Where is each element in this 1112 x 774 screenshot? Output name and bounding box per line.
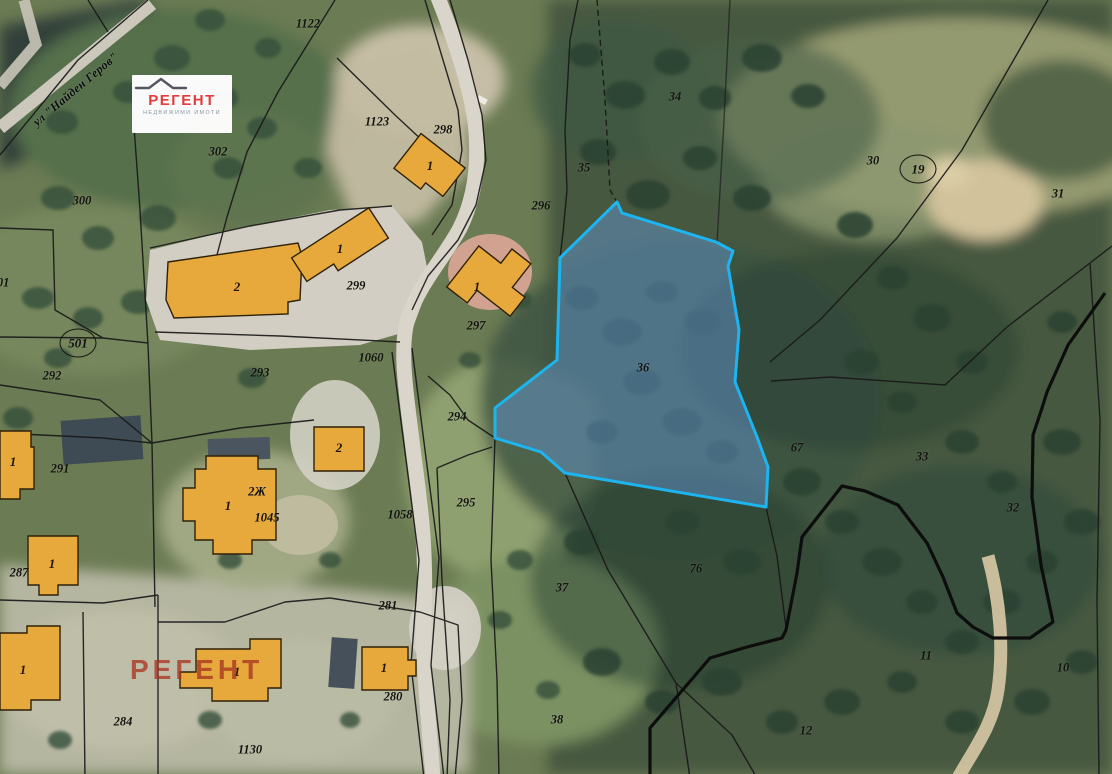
gray-roof	[328, 637, 357, 689]
agency-tagline-text: НЕДВИЖИМИ ИМОТИ	[143, 110, 221, 116]
roof-icon	[132, 75, 190, 91]
cadastral-map: 1122302300301112329829629929710602922932…	[0, 0, 1112, 774]
agency-brand-text: РЕГЕНТ	[148, 92, 216, 109]
agency-logo: РЕГЕНТ НЕДВИЖИМИ ИМОТИ	[132, 75, 232, 133]
circled-parcel-label: 501	[60, 329, 97, 358]
building-polygon	[0, 626, 60, 710]
building-polygon	[314, 427, 364, 471]
barn-roof	[61, 415, 144, 464]
building-polygon	[362, 647, 416, 690]
circled-parcel-label: 19	[900, 155, 937, 184]
building-polygon	[183, 456, 276, 554]
building-polygon	[0, 431, 34, 499]
